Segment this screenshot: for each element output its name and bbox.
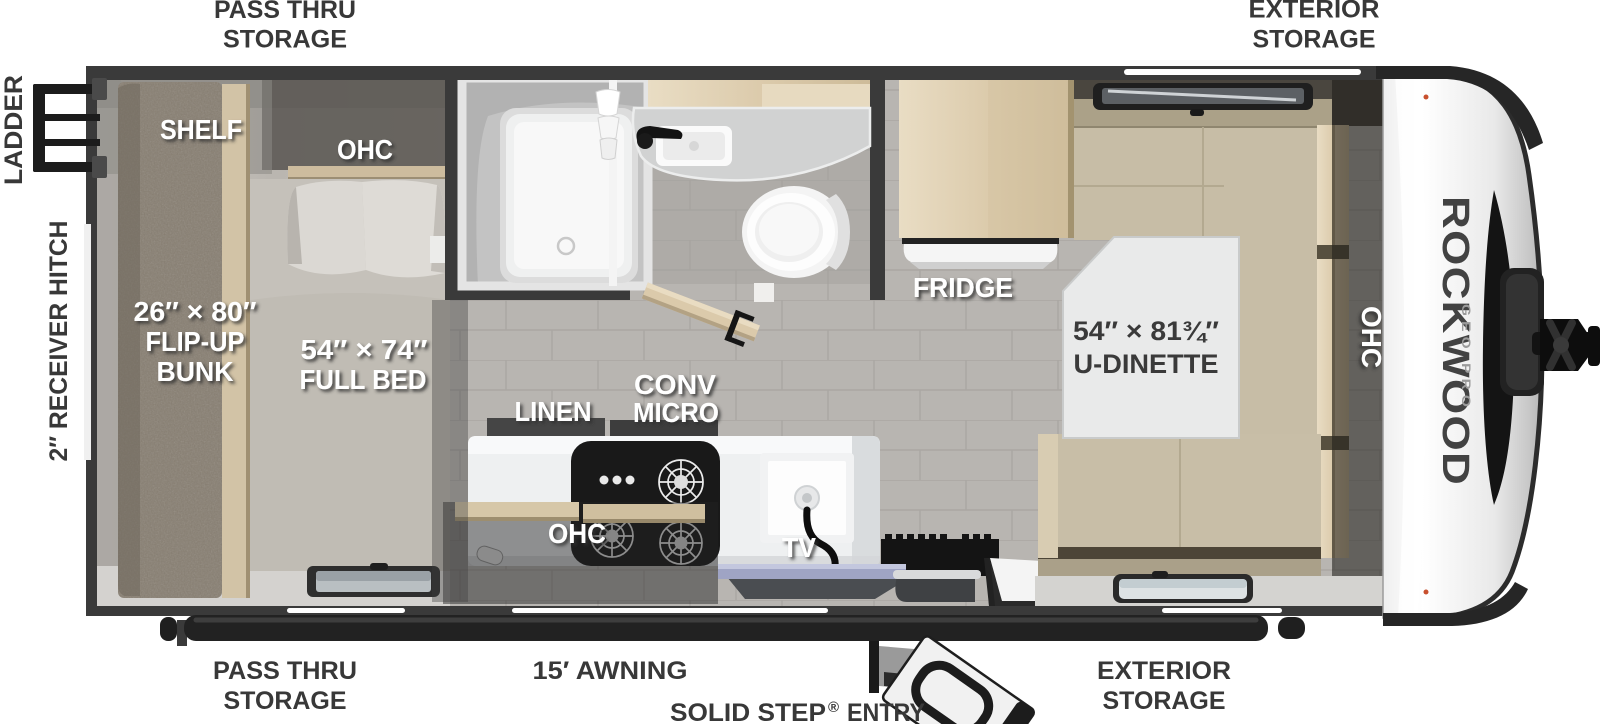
svg-text:54″ × 74″: 54″ × 74″ (301, 334, 428, 365)
svg-text:EXTERIOR: EXTERIOR (1249, 0, 1380, 24)
svg-text:STORAGE: STORAGE (1253, 26, 1376, 54)
svg-text:OHC: OHC (548, 518, 606, 549)
svg-text:26″ × 80″: 26″ × 80″ (134, 296, 257, 327)
svg-text:OHC: OHC (1356, 306, 1387, 368)
svg-text:PASS THRU: PASS THRU (213, 657, 357, 685)
svg-text:GEO PRO: GEO PRO (1459, 304, 1473, 412)
svg-text:LINEN: LINEN (515, 396, 592, 427)
svg-text:54″ × 81¾″: 54″ × 81¾″ (1073, 316, 1219, 346)
svg-text:PASS THRU: PASS THRU (214, 0, 356, 24)
svg-text:CONV: CONV (634, 369, 716, 400)
svg-text:BUNK: BUNK (157, 356, 234, 387)
svg-text:®: ® (828, 699, 839, 716)
svg-text:FULL BED: FULL BED (300, 364, 427, 395)
svg-text:SOLID STEP: SOLID STEP (670, 699, 826, 724)
svg-text:MICRO: MICRO (633, 397, 719, 428)
svg-text:SHELF: SHELF (160, 114, 242, 145)
svg-text:FLIP-UP: FLIP-UP (146, 326, 245, 357)
svg-text:STORAGE: STORAGE (223, 26, 347, 54)
svg-text:TV: TV (782, 532, 816, 563)
svg-text:ENTRY: ENTRY (847, 699, 925, 724)
svg-text:15′ AWNING: 15′ AWNING (533, 657, 688, 685)
svg-text:EXTERIOR: EXTERIOR (1097, 657, 1231, 685)
svg-text:STORAGE: STORAGE (1103, 687, 1226, 715)
svg-text:2″ RECEIVER HITCH: 2″ RECEIVER HITCH (45, 221, 73, 462)
svg-text:STORAGE: STORAGE (224, 687, 347, 715)
svg-text:U-DINETTE: U-DINETTE (1074, 349, 1219, 379)
svg-text:FRIDGE: FRIDGE (913, 272, 1013, 303)
svg-text:OHC: OHC (337, 134, 393, 165)
svg-text:LADDER: LADDER (0, 75, 28, 185)
